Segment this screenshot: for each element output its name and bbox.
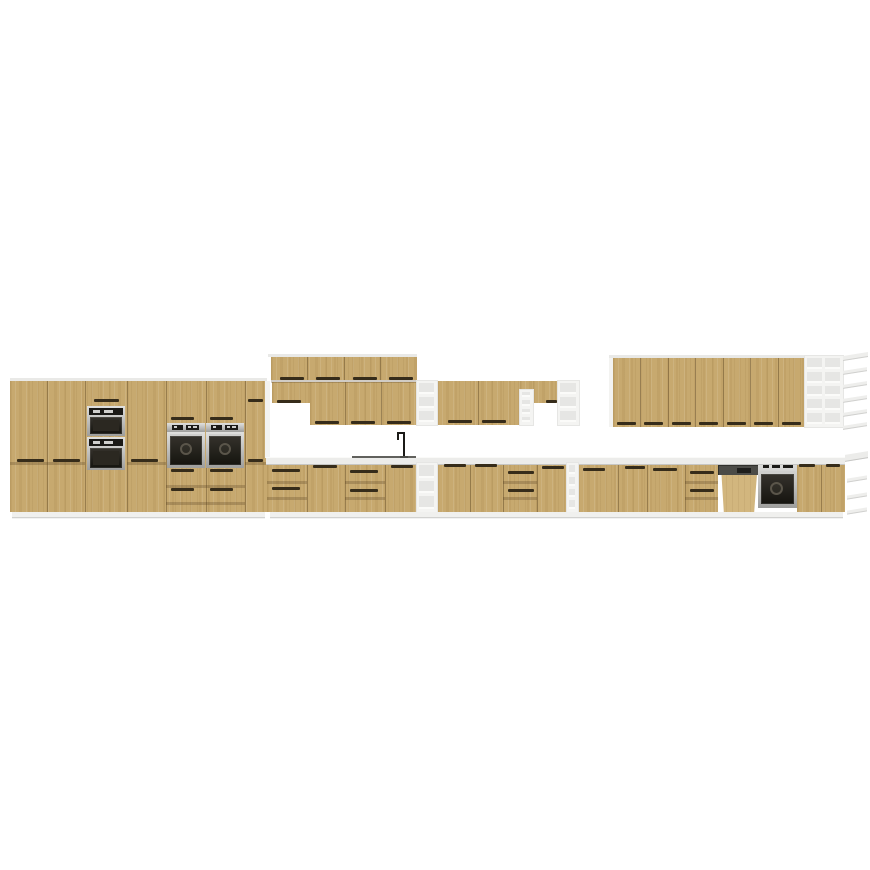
- upper-cabinet-run-right: [613, 358, 805, 427]
- dishwasher-open-door: [720, 475, 758, 512]
- faucet-base: [400, 456, 408, 458]
- tall-oven-window: [93, 451, 119, 465]
- perspective-shelf: [847, 492, 867, 499]
- perspective-shelf: [847, 475, 867, 482]
- perspective-shelf: [843, 395, 867, 403]
- recessed-handle: [350, 470, 378, 473]
- recessed-handle: [248, 459, 263, 462]
- recessed-handle: [690, 471, 714, 474]
- recessed-handle: [583, 468, 605, 471]
- perspective-shelf: [843, 409, 867, 417]
- shelf-compartment: [569, 465, 575, 474]
- recessed-handle: [277, 400, 301, 403]
- recessed-handle: [210, 417, 233, 420]
- product-image-kitchen-set: [0, 0, 870, 870]
- cabinet-door-seam: [385, 463, 386, 512]
- shelf-compartment: [825, 413, 840, 424]
- recessed-handle: [653, 468, 677, 471]
- steel-control: [193, 426, 197, 428]
- shelf-compartment: [807, 386, 822, 397]
- drawer-seam: [503, 481, 537, 484]
- floor-shadow: [270, 517, 843, 519]
- shelf-compartment: [560, 383, 576, 394]
- steel-control: [174, 426, 177, 428]
- cabinet-door-seam: [668, 358, 669, 427]
- shelf-compartment: [522, 400, 530, 405]
- end-unit-top-board: [843, 352, 868, 361]
- tall-run-side-panel: [265, 381, 270, 458]
- cabinet-door-seam: [381, 382, 382, 425]
- cabinet-door-seam: [307, 463, 308, 512]
- perspective-shelf: [843, 367, 867, 375]
- recessed-handle: [171, 417, 194, 420]
- cabinet-door-seam: [345, 382, 346, 425]
- cabinet-door-seam: [695, 358, 696, 427]
- shelf-compartment: [419, 465, 434, 478]
- shelf-compartment: [419, 481, 434, 494]
- tall-oven-display: [93, 441, 100, 444]
- cabinet-door-seam: [380, 357, 381, 380]
- recessed-handle: [210, 469, 233, 472]
- recessed-handle: [353, 377, 377, 380]
- shelf-compartment: [825, 386, 840, 397]
- recessed-handle: [131, 459, 158, 462]
- cabinet-door-seam: [47, 381, 48, 512]
- cabinet-door-seam: [640, 358, 641, 427]
- recessed-handle: [315, 421, 339, 424]
- drawer-seam: [206, 502, 245, 505]
- shelf-compartment: [825, 372, 840, 383]
- drawer-seam: [685, 481, 718, 484]
- compact-oven-window: [93, 420, 119, 431]
- tall-oven-knob: [104, 441, 113, 444]
- base-cabinet-run-2: [437, 463, 567, 512]
- recessed-handle: [391, 465, 413, 468]
- recessed-handle: [508, 489, 534, 492]
- floor-shadow: [12, 517, 265, 519]
- shelf-compartment: [419, 496, 434, 509]
- recessed-handle: [444, 464, 466, 467]
- recessed-handle: [351, 421, 375, 424]
- narrow-shelf-wood-cap: [520, 381, 533, 390]
- cabinet-door-seam: [307, 357, 308, 380]
- recessed-handle: [387, 421, 411, 424]
- shelf-compartment: [560, 411, 576, 422]
- compact-oven-knob: [104, 410, 113, 413]
- recessed-handle: [313, 465, 337, 468]
- faucet-spout-tip: [397, 434, 399, 440]
- recessed-handle: [17, 459, 44, 462]
- drawer-seam: [685, 497, 718, 500]
- shelf-compartment: [522, 392, 530, 397]
- cabinet-door-seam: [245, 381, 246, 512]
- cabinet-door-seam: [503, 463, 504, 512]
- shelf-compartment: [569, 477, 575, 486]
- recessed-handle: [448, 420, 472, 423]
- cabinet-door-seam: [345, 463, 346, 512]
- faucet-stem: [403, 433, 405, 457]
- steel-control: [232, 426, 236, 428]
- recessed-handle: [94, 399, 119, 402]
- shelf-compartment: [825, 399, 840, 410]
- cabinet-door-seam: [723, 358, 724, 427]
- recessed-handle: [272, 487, 300, 490]
- recessed-handle: [248, 399, 263, 402]
- perspective-shelf: [843, 381, 867, 389]
- cabinet-door-seam: [647, 463, 648, 512]
- upper-right-side-panel: [609, 358, 613, 427]
- recessed-handle: [389, 377, 413, 380]
- base-oven-handle-bar: [760, 471, 795, 473]
- perspective-shelf: [843, 422, 867, 430]
- oven-b-fan: [219, 443, 231, 455]
- recessed-handle: [280, 377, 304, 380]
- recessed-handle: [690, 489, 714, 492]
- drawer-seam: [10, 462, 47, 465]
- cabinet-door-seam: [478, 381, 479, 425]
- recessed-handle: [171, 488, 194, 491]
- cabinet-door-seam: [618, 463, 619, 512]
- recessed-handle: [171, 469, 194, 472]
- shelf-compartment: [807, 372, 822, 383]
- cabinet-door-seam: [85, 381, 86, 512]
- drawer-seam: [47, 462, 85, 465]
- drawer-seam: [503, 497, 537, 500]
- countertop-end-perspective: [845, 451, 868, 462]
- cabinet-door-seam: [537, 463, 538, 512]
- shelf-compartment: [807, 413, 822, 424]
- cabinet-door-seam: [344, 357, 345, 380]
- base-oven-fan: [770, 482, 783, 495]
- kitchen-render-scene: [0, 0, 870, 870]
- steel-control: [188, 426, 191, 428]
- dishwasher-display: [737, 468, 751, 473]
- wall-cabinet-run-a: [310, 382, 417, 425]
- shelf-compartment: [419, 383, 434, 394]
- recessed-handle: [272, 469, 300, 472]
- recessed-handle: [672, 422, 691, 425]
- shelf-compartment: [419, 411, 434, 422]
- cabinet-door-seam: [470, 463, 471, 512]
- recessed-handle: [482, 420, 506, 423]
- drawer-seam: [166, 502, 206, 505]
- recessed-handle: [826, 464, 840, 467]
- recessed-handle: [546, 400, 557, 403]
- recessed-handle: [53, 459, 80, 462]
- shelf-compartment: [522, 409, 530, 414]
- shelf-compartment: [825, 358, 840, 369]
- recessed-handle: [617, 422, 636, 425]
- drawer-seam: [267, 481, 307, 484]
- steel-control: [213, 426, 216, 428]
- shelf-compartment: [560, 397, 576, 408]
- cabinet-door-seam: [821, 463, 822, 512]
- drawer-seam: [345, 497, 385, 500]
- recessed-handle: [782, 422, 801, 425]
- cabinet-door-seam: [778, 358, 779, 427]
- shelf-compartment: [807, 358, 822, 369]
- cabinet-door-seam: [685, 463, 686, 512]
- countertop: [266, 457, 845, 465]
- drawer-seam: [271, 380, 417, 383]
- drawer-seam: [245, 462, 267, 465]
- cabinet-door-seam: [750, 358, 751, 427]
- shelf-compartment: [419, 397, 434, 408]
- oven-a-fan: [180, 443, 192, 455]
- recessed-handle: [727, 422, 746, 425]
- shelf-compartment: [807, 399, 822, 410]
- recessed-handle: [210, 488, 233, 491]
- recessed-handle: [542, 466, 564, 469]
- recessed-handle: [754, 422, 773, 425]
- shelf-compartment: [569, 500, 575, 509]
- recessed-handle: [799, 464, 815, 467]
- compact-oven-display: [93, 410, 100, 413]
- drawer-seam: [345, 481, 385, 484]
- perspective-shelf: [847, 507, 867, 514]
- recessed-handle: [475, 464, 497, 467]
- recessed-handle: [508, 471, 534, 474]
- drawer-seam: [127, 462, 166, 465]
- shelf-compartment: [522, 417, 530, 422]
- steel-control: [227, 426, 230, 428]
- cabinet-door-seam: [127, 381, 128, 512]
- recessed-handle: [699, 422, 718, 425]
- drawer-seam: [267, 497, 307, 500]
- recessed-handle: [316, 377, 340, 380]
- shelf-compartment: [569, 489, 575, 498]
- recessed-handle: [350, 489, 378, 492]
- recessed-handle: [644, 422, 663, 425]
- recessed-handle: [625, 466, 645, 469]
